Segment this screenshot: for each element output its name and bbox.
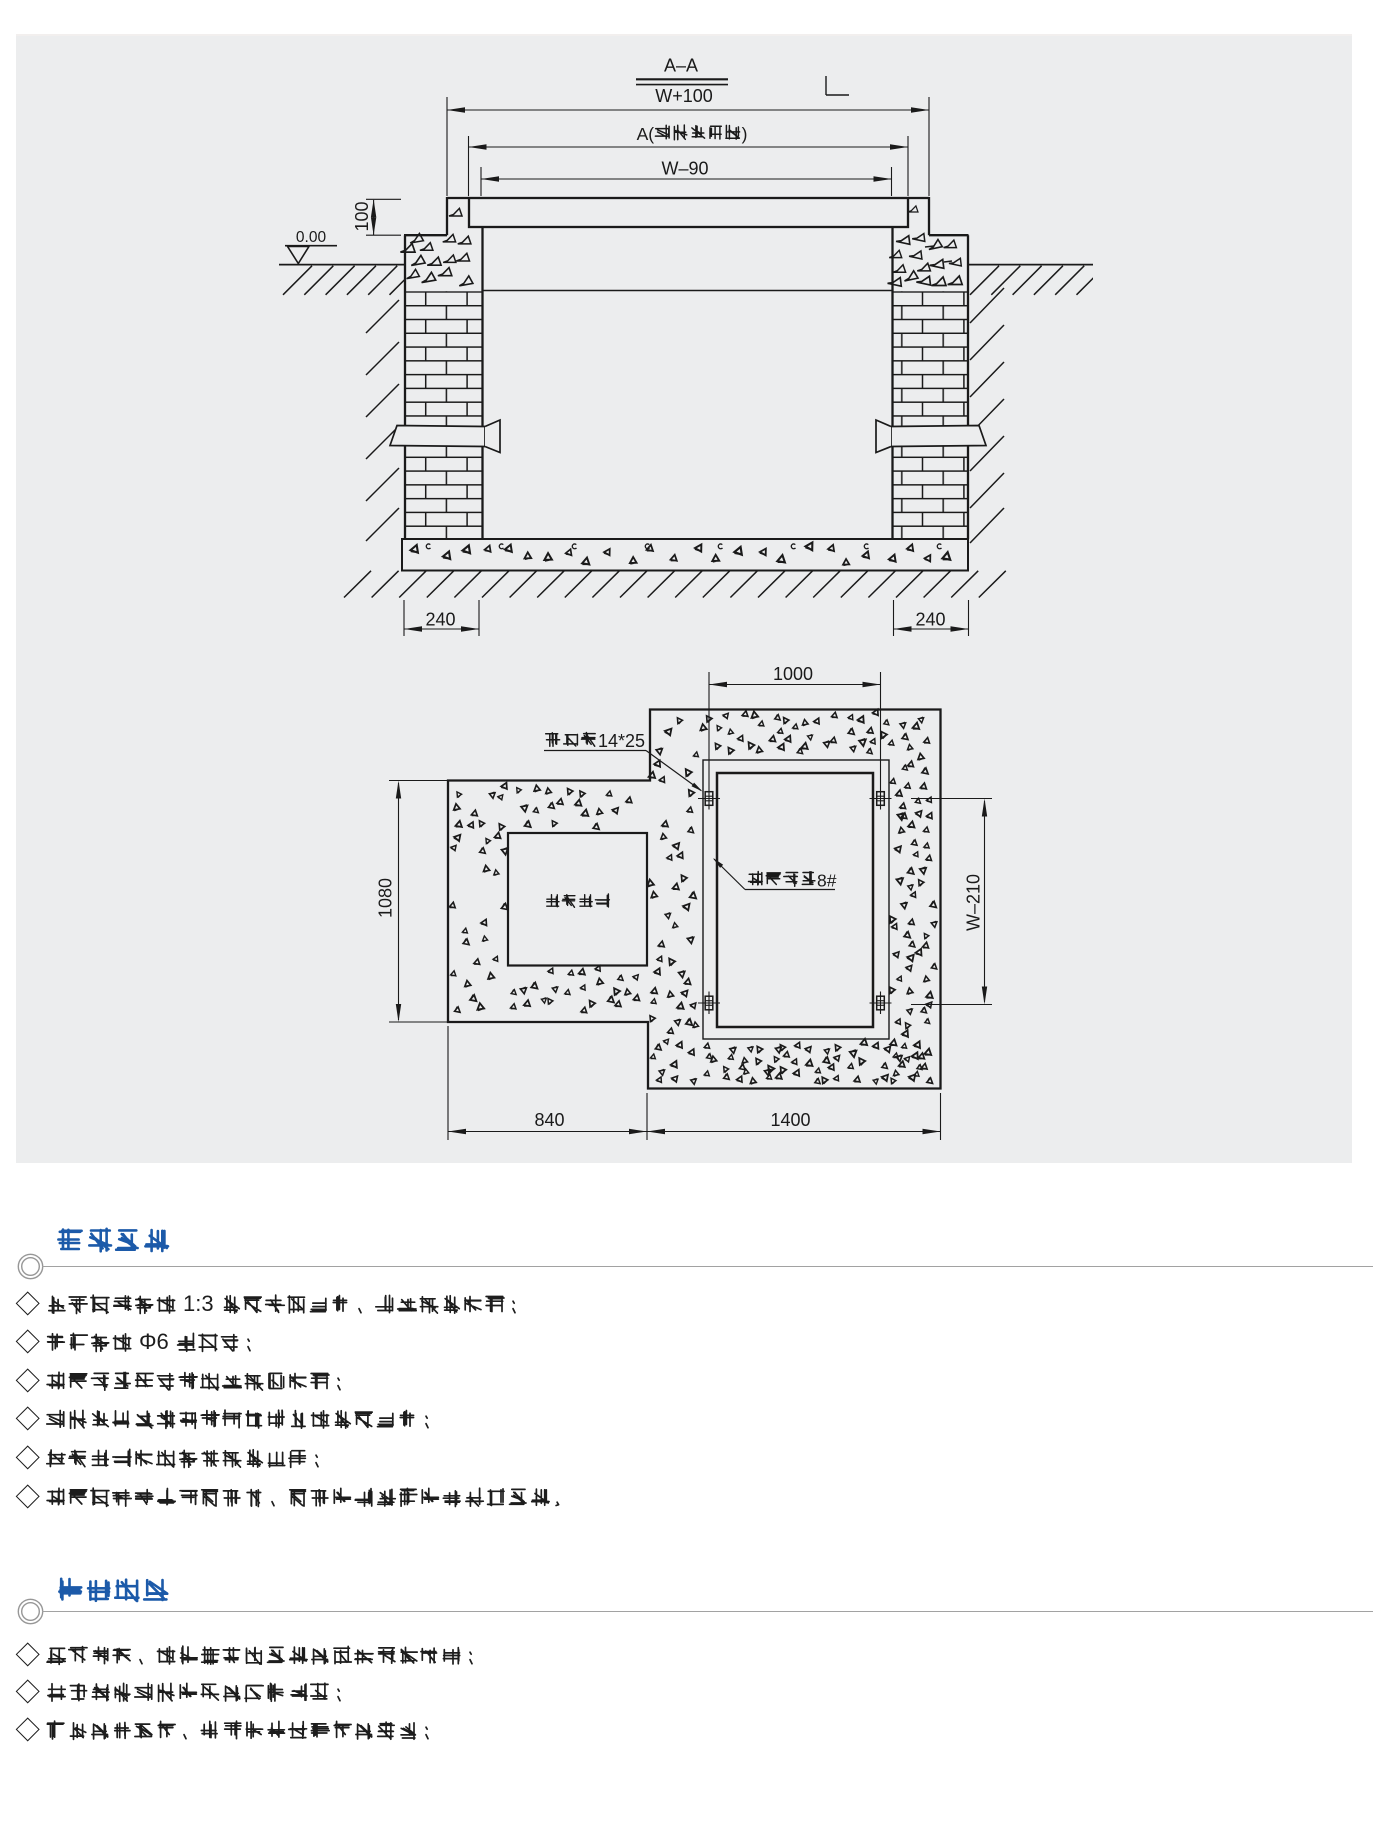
svg-text:0.00: 0.00 — [296, 229, 327, 246]
svg-text:100: 100 — [352, 201, 372, 231]
svg-text:240: 240 — [425, 610, 455, 630]
svg-text:): ) — [742, 124, 748, 144]
svg-text:W+100: W+100 — [655, 86, 713, 106]
svg-text:1400: 1400 — [770, 1110, 810, 1130]
svg-text:1000: 1000 — [773, 664, 813, 684]
svg-text:W–210: W–210 — [964, 874, 984, 931]
svg-text:A–A: A–A — [664, 56, 698, 76]
svg-text:14*25: 14*25 — [598, 731, 645, 751]
svg-text:8#: 8# — [817, 871, 837, 891]
svg-text:A(: A( — [637, 124, 655, 144]
svg-text:W–90: W–90 — [661, 159, 708, 179]
svg-text:240: 240 — [915, 610, 945, 630]
svg-text:1080: 1080 — [376, 878, 396, 918]
svg-text:840: 840 — [534, 1110, 564, 1130]
